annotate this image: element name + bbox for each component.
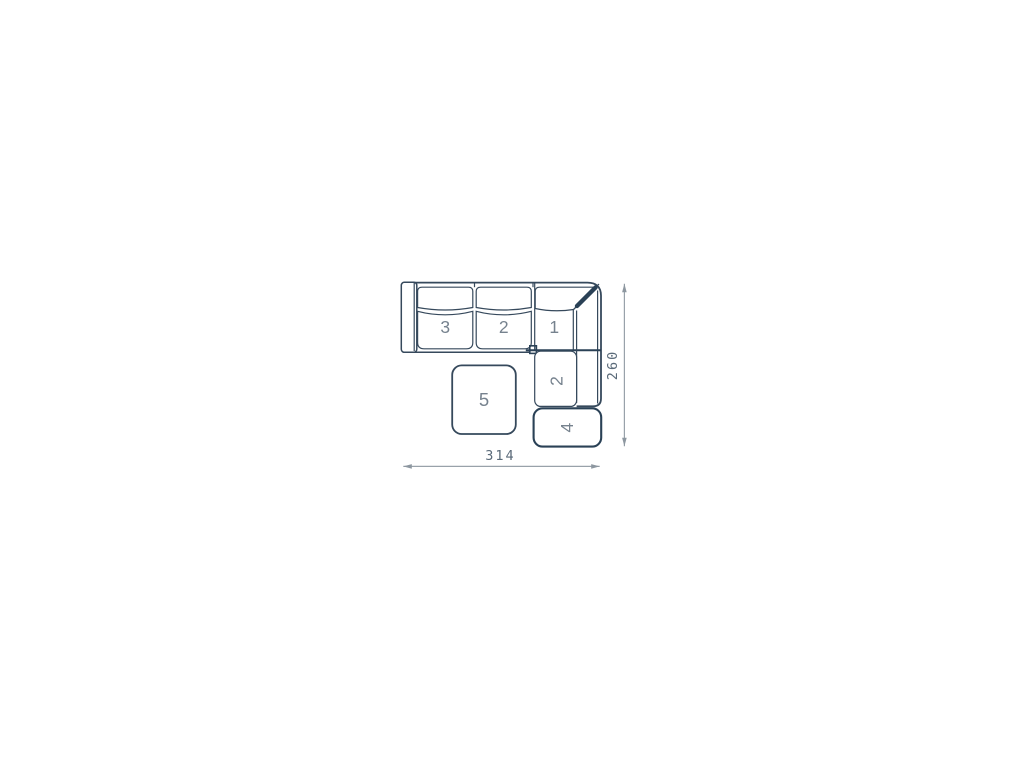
height-arrow-top	[622, 284, 627, 293]
seat-1-label: 1	[549, 317, 559, 337]
width-dimension-label: 314	[485, 448, 515, 464]
chaise-section	[526, 311, 601, 407]
width-dimension: 314	[403, 448, 599, 469]
height-arrow-bottom	[622, 438, 627, 447]
seat-2-top-label: 2	[499, 317, 509, 337]
backrest-cushion-3	[418, 287, 473, 310]
height-dimension-label: 260	[605, 350, 621, 380]
sofa-dimension-diagram: 3 2 1 2 4 5 314 260	[0, 0, 1024, 768]
seat-3-label: 3	[440, 317, 450, 337]
chaise-2-label: 2	[547, 376, 567, 386]
backrest-cushion-2	[476, 287, 531, 310]
width-arrow-left	[403, 464, 412, 469]
width-arrow-right	[591, 464, 600, 469]
height-dimension: 260	[605, 284, 627, 446]
module-4-label: 4	[557, 422, 577, 432]
diagram-canvas: 3 2 1 2 4 5 314 260	[0, 0, 1024, 768]
ottoman-5-label: 5	[479, 389, 489, 410]
